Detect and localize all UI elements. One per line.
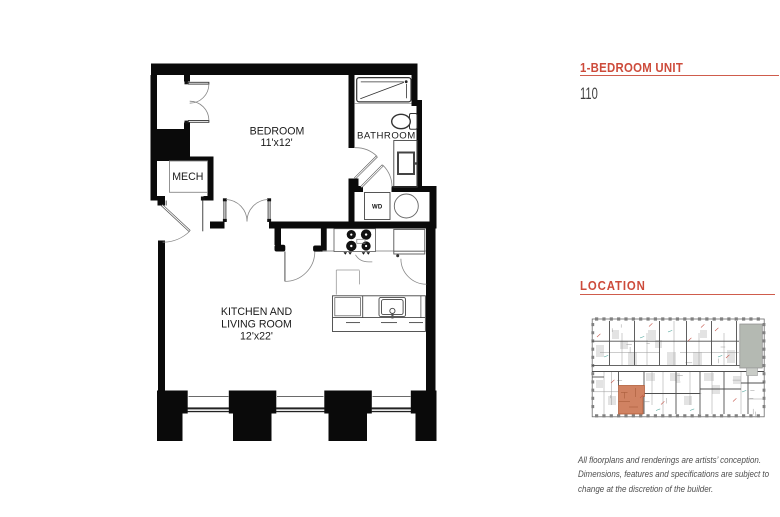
svg-text:WD: WD [372,204,383,210]
svg-text:11'x12': 11'x12' [261,137,293,149]
svg-text:LIVING ROOM: LIVING ROOM [221,318,292,330]
svg-text:12'x22': 12'x22' [240,331,273,343]
svg-text:BATHROOM: BATHROOM [357,131,416,142]
svg-text:KITCHEN AND: KITCHEN AND [221,306,293,318]
svg-text:MECH: MECH [172,171,203,183]
